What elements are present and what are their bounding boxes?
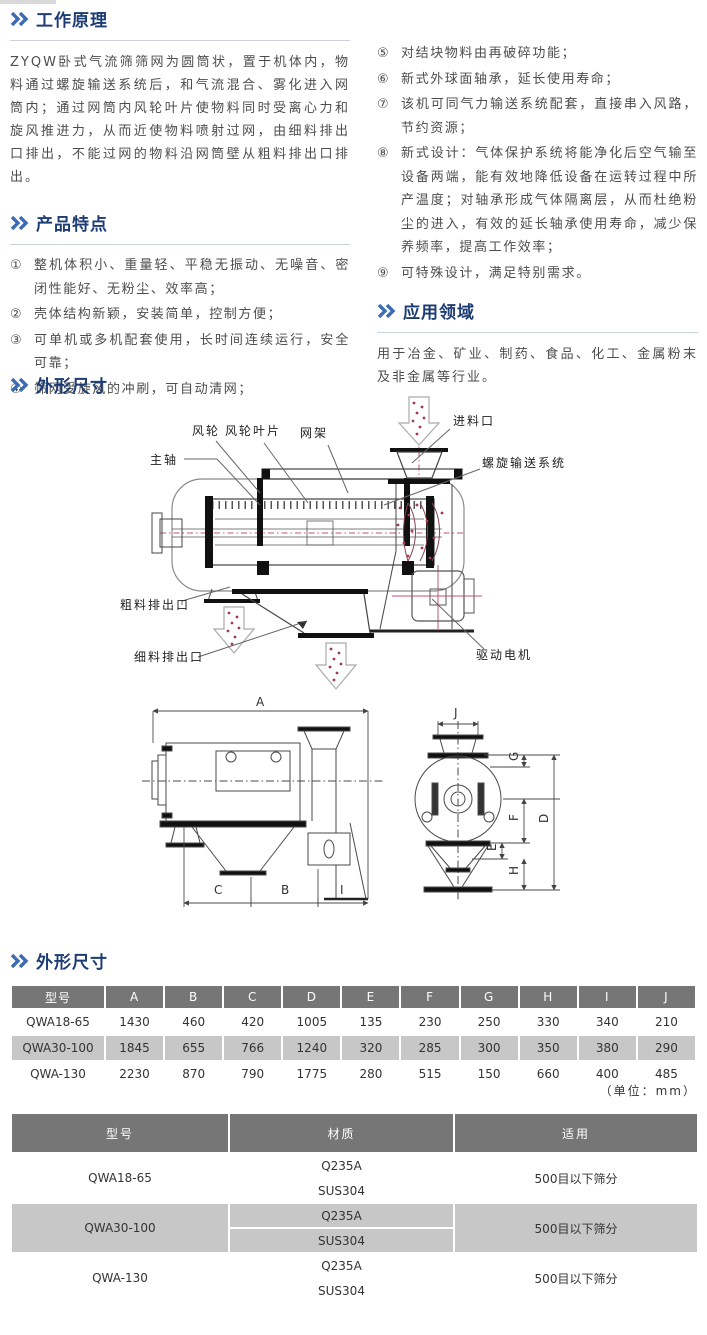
feature-number: ⑤ (377, 42, 401, 66)
feature-text: 可单机或多机配套使用，长时间连续运行，安全可靠； (34, 329, 350, 376)
feature-item: ⑥新式外球面轴承，延长使用寿命； (377, 68, 698, 92)
dim-value-cell: 300 (461, 1036, 518, 1060)
dim-value-cell: 460 (165, 1010, 222, 1034)
dim-table-header-cell: G (461, 986, 518, 1008)
unit-note: （单位：mm） (10, 1082, 697, 1099)
dim-value-cell: 1005 (283, 1010, 340, 1034)
fine-outlet-label: 细料排出口 (134, 650, 204, 664)
end-view-drawing (415, 721, 501, 901)
material-cell: SUS304 (229, 1228, 454, 1253)
double-chevron-icon (377, 304, 396, 318)
feature-number: ⑦ (377, 93, 401, 140)
screw-system-label: 螺旋输送系统 (482, 455, 566, 470)
application-heading: 应用领域 (377, 298, 698, 333)
dim-table-header-cell: C (224, 986, 281, 1008)
feature-text: 可特殊设计，满足特别需求。 (401, 262, 698, 286)
dimension-table: 型号ABCDEFGHIJ QWA18-651430460420100513523… (10, 984, 697, 1088)
product-datasheet-page: 工作原理 ZYQW卧式气流筛筛网为圆筒状，置于机体内，物料通过螺旋输送系统后，和… (0, 0, 707, 1335)
dim-G: G (507, 752, 521, 761)
dimension-table-row: QWA18-6514304604201005135230250330340210 (12, 1010, 695, 1034)
casing-outline (172, 479, 464, 591)
coarse-flow-arrow (214, 607, 254, 653)
feature-text: 新式外球面轴承，延长使用寿命； (401, 68, 698, 92)
feature-text: 对结块物料由再破碎功能； (401, 42, 698, 66)
dim-value-cell: 420 (224, 1010, 281, 1034)
dim-value-cell: 135 (342, 1010, 399, 1034)
material-cell: Q235A (229, 1153, 454, 1178)
feature-number: ⑧ (377, 142, 401, 260)
section-title: 产品特点 (36, 210, 108, 235)
feature-item: ①整机体积小、重量轻、平稳无振动、无噪音、密闭性能好、无粉尘、效率高； (10, 254, 350, 301)
main-shaft-label: 主轴 (150, 452, 178, 467)
material-cell: SUS304 (229, 1278, 454, 1303)
dim-J: J (453, 706, 458, 720)
dim-table-header-cell: F (401, 986, 458, 1008)
dim-value-cell: 210 (638, 1010, 695, 1034)
dim-model-cell: QWA30-100 (12, 1036, 104, 1060)
leader-arrowhead (297, 621, 307, 629)
section-title: 应用领域 (403, 298, 475, 323)
material-model-cell: QWA30-100 (11, 1203, 229, 1253)
wind-wheel-label: 风轮 (192, 424, 220, 438)
feature-text: 新式设计：气体保护系统将能净化后空气输至设备两端，能有效地降低设备在运转过程中所… (401, 142, 698, 260)
dim-table-header-cell: E (342, 986, 399, 1008)
material-cell: Q235A (229, 1253, 454, 1278)
working-principle-text: ZYQW卧式气流筛筛网为圆筒状，置于机体内，物料通过螺旋输送系统后，和气流混合、… (10, 51, 350, 189)
material-table-row: QWA18-65Q235A500目以下筛分 (11, 1153, 698, 1178)
machine-cutaway-diagram: 主轴 风轮 风轮叶片 网架 进料口 螺旋输送系统 粗料排出口 细料排出口 驱动电… (112, 393, 578, 693)
dim-table-header-cell: I (579, 986, 636, 1008)
dim-value-cell: 230 (401, 1010, 458, 1034)
features-list-right: ⑤对结块物料由再破碎功能；⑥新式外球面轴承，延长使用寿命；⑦该机可同气力输送系统… (377, 42, 698, 285)
left-column: 工作原理 ZYQW卧式气流筛筛网为圆筒状，置于机体内，物料通过螺旋输送系统后，和… (10, 6, 350, 403)
dim-E: E (485, 843, 499, 851)
dim-value-cell: 350 (520, 1036, 577, 1060)
dim-value-cell: 1240 (283, 1036, 340, 1060)
material-model-cell: QWA18-65 (11, 1153, 229, 1203)
dim-table-header-cell: D (283, 986, 340, 1008)
dim-H: H (507, 866, 521, 875)
dimension-table-heading: 外形尺寸 (10, 948, 350, 973)
feature-item: ⑧新式设计：气体保护系统将能净化后空气输至设备两端，能有效地降低设备在运转过程中… (377, 142, 698, 260)
feature-text: 该机可同气力输送系统配套，直接串入风路，节约资源； (401, 93, 698, 140)
feature-number: ⑨ (377, 262, 401, 286)
material-usage-cell: 500目以下筛分 (454, 1253, 698, 1303)
double-chevron-icon (10, 216, 29, 230)
dim-value-cell: 1430 (106, 1010, 163, 1034)
dim-table-header-cell: B (165, 986, 222, 1008)
dim-table-header-cell: 型号 (12, 986, 104, 1008)
material-cell: Q235A (229, 1203, 454, 1228)
material-model-cell: QWA-130 (11, 1253, 229, 1303)
features-heading: 产品特点 (10, 210, 350, 245)
dim-F: F (507, 814, 521, 821)
inlet-flow-arrow (399, 397, 439, 445)
working-principle-heading: 工作原理 (10, 6, 350, 41)
section-title: 外形尺寸 (36, 372, 108, 397)
mesh-frame-label: 网架 (300, 426, 328, 440)
feature-text: 壳体结构新颖，安装简单，控制方便； (34, 303, 350, 327)
material-table-row: QWA-130Q235A500目以下筛分 (11, 1253, 698, 1278)
material-table-header-row: 型号 材质 适用 (11, 1113, 698, 1153)
feature-number: ⑥ (377, 68, 401, 92)
feed-inlet-label: 进料口 (453, 414, 495, 428)
dim-value-cell: 340 (579, 1010, 636, 1034)
feature-text: 整机体积小、重量轻、平稳无振动、无噪音、密闭性能好、无粉尘、效率高； (34, 254, 350, 301)
material-usage-cell: 500目以下筛分 (454, 1203, 698, 1253)
material-col-material: 材质 (229, 1113, 454, 1153)
section-title: 外形尺寸 (36, 948, 108, 973)
feature-item: ⑤对结块物料由再破碎功能； (377, 42, 698, 66)
dim-D: D (537, 814, 551, 823)
top-edge-remnant (0, 0, 56, 4)
dim-table-header-cell: H (520, 986, 577, 1008)
material-table: 型号 材质 适用 QWA18-65Q235A500目以下筛分SUS304QWA3… (10, 1112, 697, 1304)
right-column: ⑤对结块物料由再破碎功能；⑥新式外球面轴承，延长使用寿命；⑦该机可同气力输送系统… (377, 6, 698, 389)
feature-item: ⑨可特殊设计，满足特别需求。 (377, 262, 698, 286)
dim-value-cell: 250 (461, 1010, 518, 1034)
dimension-table-header-row: 型号ABCDEFGHIJ (12, 986, 695, 1008)
double-chevron-icon (10, 12, 29, 26)
side-view-drawing (142, 727, 384, 899)
coarse-outlet-label: 粗料排出口 (120, 598, 190, 612)
dim-B: B (281, 883, 289, 897)
feature-item: ②壳体结构新颖，安装简单，控制方便； (10, 303, 350, 327)
double-chevron-icon (10, 954, 29, 968)
material-table-row: QWA30-100Q235A500目以下筛分 (11, 1203, 698, 1228)
feature-number: ② (10, 303, 34, 327)
material-cell: SUS304 (229, 1178, 454, 1203)
application-text: 用于冶金、矿业、制药、食品、化工、金属粉末及非金属等行业。 (377, 343, 698, 389)
feature-item: ⑦该机可同气力输送系统配套，直接串入风路，节约资源； (377, 93, 698, 140)
dim-value-cell: 320 (342, 1036, 399, 1060)
feature-number: ③ (10, 329, 34, 376)
material-usage-cell: 500目以下筛分 (454, 1153, 698, 1203)
feature-item: ③可单机或多机配套使用，长时间连续运行，安全可靠； (10, 329, 350, 376)
wind-wheel-bar (257, 478, 263, 546)
dim-A: A (256, 695, 265, 709)
dim-value-cell: 1845 (106, 1036, 163, 1060)
material-col-usage: 适用 (454, 1113, 698, 1153)
wind-blade-label: 风轮叶片 (225, 424, 281, 438)
dim-value-cell: 380 (579, 1036, 636, 1060)
section-title: 工作原理 (36, 6, 108, 31)
dim-C: C (214, 883, 222, 897)
dim-value-cell: 330 (520, 1010, 577, 1034)
dim-I: I (340, 883, 344, 897)
dim-value-cell: 766 (224, 1036, 281, 1060)
dimension-drawings: A C B I (128, 693, 598, 935)
dim-value-cell: 655 (165, 1036, 222, 1060)
dim-model-cell: QWA18-65 (12, 1010, 104, 1034)
double-chevron-icon (10, 378, 29, 392)
fine-flow-arrow (316, 643, 356, 689)
dimension-table-row: QWA30-1001845655766124032028530035038029… (12, 1036, 695, 1060)
dim-value-cell: 290 (638, 1036, 695, 1060)
dim-value-cell: 285 (401, 1036, 458, 1060)
feature-number: ① (10, 254, 34, 301)
dim-table-header-cell: J (638, 986, 695, 1008)
drive-motor-label: 驱动电机 (476, 648, 532, 662)
dim-table-header-cell: A (106, 986, 163, 1008)
material-col-model: 型号 (11, 1113, 229, 1153)
